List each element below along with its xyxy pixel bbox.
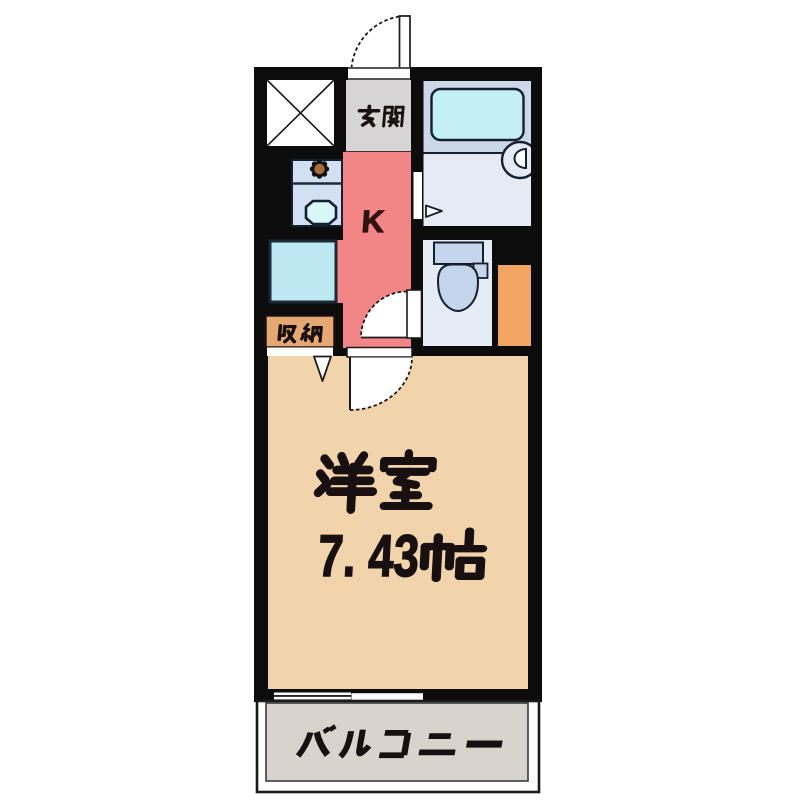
svg-text:7. 43: 7. 43 <box>316 523 420 589</box>
svg-text:K: K <box>361 204 386 239</box>
